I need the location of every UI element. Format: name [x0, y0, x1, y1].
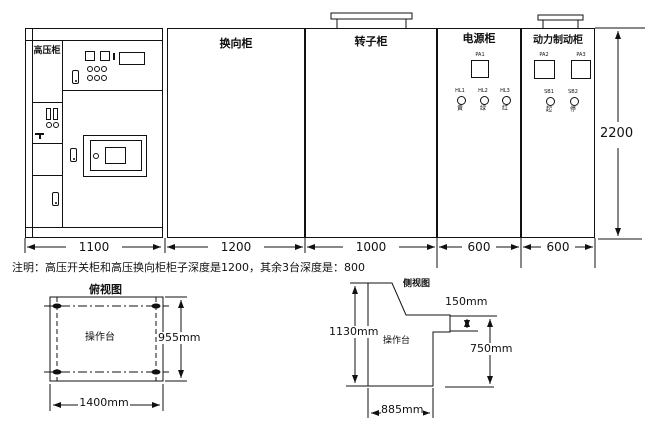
top-view-console-label: 操作台	[85, 332, 115, 343]
power-lamp-3	[502, 96, 511, 105]
power-lamp2-tag: HL2	[473, 89, 493, 95]
depth-note: 注明：高压开关柜和高压换向柜柜子深度是1200，其余3台深度是：800	[12, 262, 365, 274]
reversing-cabinet	[167, 28, 305, 238]
dim-150-label: 150mm	[445, 296, 485, 308]
brake-button-1	[546, 97, 555, 106]
dim-1400-label: 1400mm	[78, 397, 130, 409]
power-cabinet-label: 电源柜	[437, 33, 521, 45]
power-lamp2-char: 绿	[473, 106, 493, 113]
hv-indicator-6	[101, 75, 107, 81]
brake-button1-char: 起	[539, 107, 559, 114]
hv-top-band-line	[26, 40, 162, 41]
power-lamp3-char: 红	[495, 106, 515, 113]
brake-cabinet-label: 动力制动柜	[521, 35, 595, 46]
hv-door-handle-icon	[70, 148, 77, 162]
dim-750-label: 750mm	[470, 343, 510, 355]
hv-display-meter	[119, 52, 145, 65]
brake-meter-box-2	[571, 60, 591, 79]
power-meter-box	[471, 60, 489, 78]
overall-height-dim: 2200	[600, 127, 633, 141]
brake-button2-char: 停	[563, 107, 583, 114]
top-view-title: 俯视图	[89, 284, 122, 296]
hv-window-knob	[93, 153, 99, 159]
side-view-title: 侧视图	[403, 280, 430, 290]
brake-meter2-tag: PA3	[568, 53, 594, 59]
hv-indicator-2	[94, 66, 100, 72]
brake-button2-tag: SB2	[563, 90, 583, 96]
console-profile	[368, 283, 450, 386]
lifting-bar-1	[331, 13, 412, 19]
dim-600b-label: 600	[541, 241, 575, 254]
hv-col-sect1-line	[33, 102, 62, 103]
hv-key-switch-icon	[72, 70, 79, 84]
rotor-cabinet	[305, 28, 437, 238]
hv-col-sect3-line	[33, 175, 62, 176]
rotor-cabinet-label: 转子柜	[305, 36, 437, 48]
dim-1130-label: 1130mm	[329, 326, 373, 338]
engineering-drawing: 高压柜 换向柜 转子柜 电源柜 动力制动柜 2200 1100 1200 100…	[0, 0, 650, 441]
hv-fuse-dot-2	[53, 122, 59, 128]
hv-left-strip-line	[32, 29, 33, 237]
lifting-bar-2	[538, 15, 583, 20]
dim-1000-label: 1000	[343, 241, 399, 254]
hv-cabinet-label: 高压柜	[33, 47, 61, 57]
hv-indicator-5	[94, 75, 100, 81]
hv-indicator-4	[87, 75, 93, 81]
dim-955-label: 955mm	[158, 332, 200, 344]
reversing-cabinet-label: 换向柜	[167, 38, 305, 50]
hv-fuse-window-1	[46, 108, 51, 120]
hv-column-divider	[62, 40, 63, 227]
power-lamp1-char: 黄	[450, 106, 470, 113]
dim-600a-label: 600	[462, 241, 496, 254]
brake-meter1-tag: PA2	[531, 53, 557, 59]
brake-button-2	[570, 97, 579, 106]
hv-switch-bar	[113, 53, 115, 60]
hv-panel-divider	[62, 90, 162, 91]
brake-meter-box-1	[534, 60, 555, 79]
hv-window-pane	[105, 147, 126, 164]
hv-meter-square-2	[100, 51, 110, 61]
hv-lower-handle-icon	[52, 192, 59, 206]
hv-t-handle-stem	[39, 135, 41, 139]
hv-indicator-3	[101, 66, 107, 72]
side-view-console-label: 操作台	[383, 337, 410, 347]
brake-button1-tag: SB1	[539, 90, 559, 96]
hv-col-sect2-line	[33, 143, 62, 144]
hv-meter-square-1	[85, 51, 95, 61]
power-lamp-1	[457, 96, 466, 105]
power-lamp1-tag: HL1	[450, 89, 470, 95]
hv-plinth-line	[26, 227, 162, 228]
power-lamp-2	[480, 96, 489, 105]
hv-indicator-1	[87, 66, 93, 72]
hv-fuse-window-2	[53, 108, 58, 120]
dim-1200-label: 1200	[208, 241, 264, 254]
dim-1100-label: 1100	[66, 241, 122, 254]
power-lamp3-tag: HL3	[495, 89, 515, 95]
hv-fuse-dot-1	[46, 122, 52, 128]
dim-885-label: 885mm	[381, 404, 423, 416]
power-meter-tag: PA1	[467, 53, 493, 59]
